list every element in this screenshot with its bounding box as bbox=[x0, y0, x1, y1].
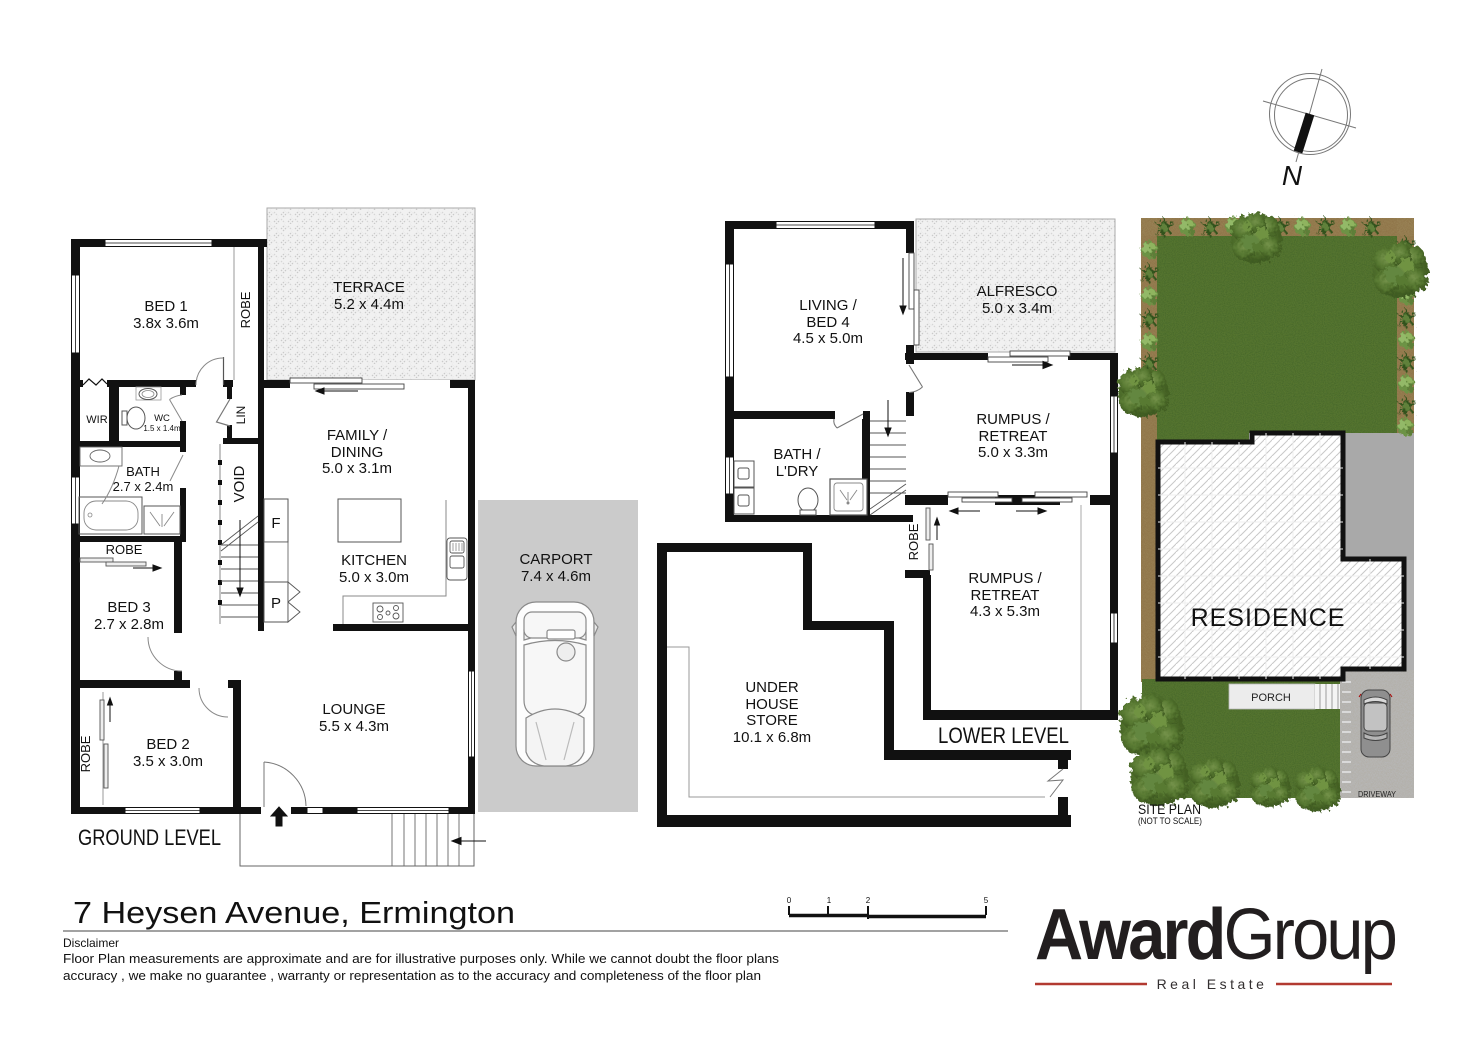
svg-text:WIR: WIR bbox=[86, 414, 107, 426]
svg-text:7.4 x 4.6m: 7.4 x 4.6m bbox=[521, 568, 591, 585]
svg-text:LIN: LIN bbox=[234, 406, 248, 425]
svg-text:ROBE: ROBE bbox=[906, 523, 921, 560]
svg-text:5.0 x 3.4m: 5.0 x 3.4m bbox=[982, 300, 1052, 317]
svg-text:PORCH: PORCH bbox=[1251, 692, 1291, 704]
svg-text:DINING: DINING bbox=[331, 444, 384, 461]
svg-text:P: P bbox=[271, 595, 281, 612]
svg-text:2.7 x 2.8m: 2.7 x 2.8m bbox=[94, 616, 164, 633]
svg-text:VOID: VOID bbox=[231, 466, 248, 503]
svg-text:5.5 x 4.3m: 5.5 x 4.3m bbox=[319, 718, 389, 735]
svg-text:5.2 x 4.4m: 5.2 x 4.4m bbox=[334, 296, 404, 313]
svg-text:5: 5 bbox=[984, 896, 989, 905]
svg-text:F: F bbox=[271, 515, 280, 532]
svg-text:2: 2 bbox=[866, 896, 871, 905]
svg-text:4.5 x 5.0m: 4.5 x 5.0m bbox=[793, 330, 863, 347]
svg-text:3.8x 3.6m: 3.8x 3.6m bbox=[133, 315, 199, 332]
svg-text:5.0 x 3.3m: 5.0 x 3.3m bbox=[978, 444, 1048, 461]
svg-text:LOWER LEVEL: LOWER LEVEL bbox=[938, 723, 1069, 748]
svg-text:RUMPUS /: RUMPUS / bbox=[968, 570, 1042, 587]
svg-text:N: N bbox=[1282, 160, 1303, 191]
svg-text:CARPORT: CARPORT bbox=[519, 551, 592, 568]
svg-text:L'DRY: L'DRY bbox=[776, 463, 819, 480]
svg-text:RETREAT: RETREAT bbox=[979, 428, 1048, 445]
svg-text:GROUND LEVEL: GROUND LEVEL bbox=[78, 825, 221, 850]
svg-text:10.1 x 6.8m: 10.1 x 6.8m bbox=[733, 729, 811, 746]
svg-text:BED 4: BED 4 bbox=[806, 314, 849, 331]
svg-text:BED 2: BED 2 bbox=[146, 736, 189, 753]
svg-text:3.5 x 3.0m: 3.5 x 3.0m bbox=[133, 753, 203, 770]
svg-text:BED 1: BED 1 bbox=[144, 298, 187, 315]
svg-text:WC: WC bbox=[154, 413, 170, 424]
svg-text:ROBE: ROBE bbox=[106, 542, 143, 557]
svg-text:ROBE: ROBE bbox=[78, 735, 93, 772]
svg-text:0: 0 bbox=[787, 896, 792, 905]
svg-text:BATH /: BATH / bbox=[773, 446, 821, 463]
svg-text:LOUNGE: LOUNGE bbox=[322, 701, 385, 718]
svg-text:Real Estate: Real Estate bbox=[1157, 976, 1268, 992]
svg-text:AwardGroup: AwardGroup bbox=[1035, 895, 1396, 975]
svg-text:7 Heysen Avenue, Ermington: 7 Heysen Avenue, Ermington bbox=[73, 895, 515, 930]
svg-text:LIVING /: LIVING / bbox=[799, 297, 857, 314]
svg-text:accuracy , we make no guarante: accuracy , we make no guarantee , warran… bbox=[63, 968, 761, 983]
svg-text:RUMPUS /: RUMPUS / bbox=[976, 411, 1050, 428]
svg-text:4.3 x 5.3m: 4.3 x 5.3m bbox=[970, 603, 1040, 620]
svg-text:1: 1 bbox=[827, 896, 832, 905]
svg-text:1.5 x 1.4m: 1.5 x 1.4m bbox=[143, 424, 181, 433]
svg-text:TERRACE: TERRACE bbox=[333, 279, 405, 296]
svg-text:5.0 x 3.0m: 5.0 x 3.0m bbox=[339, 569, 409, 586]
svg-text:UNDER: UNDER bbox=[745, 679, 799, 696]
svg-text:STORE: STORE bbox=[746, 712, 797, 729]
svg-text:BED 3: BED 3 bbox=[107, 599, 150, 616]
svg-text:SITE PLAN: SITE PLAN bbox=[1138, 802, 1201, 817]
svg-text:Floor Plan measurements are ap: Floor Plan measurements are approximate … bbox=[63, 951, 779, 966]
svg-text:(NOT TO SCALE): (NOT TO SCALE) bbox=[1138, 816, 1202, 827]
svg-text:Disclaimer: Disclaimer bbox=[63, 936, 119, 950]
svg-text:2.7 x 2.4m: 2.7 x 2.4m bbox=[113, 479, 174, 494]
svg-text:5.0 x 3.1m: 5.0 x 3.1m bbox=[322, 460, 392, 477]
svg-text:KITCHEN: KITCHEN bbox=[341, 552, 407, 569]
svg-text:RESIDENCE: RESIDENCE bbox=[1191, 604, 1346, 632]
svg-text:BATH: BATH bbox=[126, 464, 160, 479]
svg-text:RETREAT: RETREAT bbox=[971, 587, 1040, 604]
svg-text:HOUSE: HOUSE bbox=[745, 696, 798, 713]
svg-text:ALFRESCO: ALFRESCO bbox=[977, 283, 1058, 300]
svg-text:DRIVEWAY: DRIVEWAY bbox=[1358, 789, 1396, 799]
svg-text:ROBE: ROBE bbox=[238, 291, 253, 328]
svg-text:FAMILY /: FAMILY / bbox=[327, 427, 388, 444]
